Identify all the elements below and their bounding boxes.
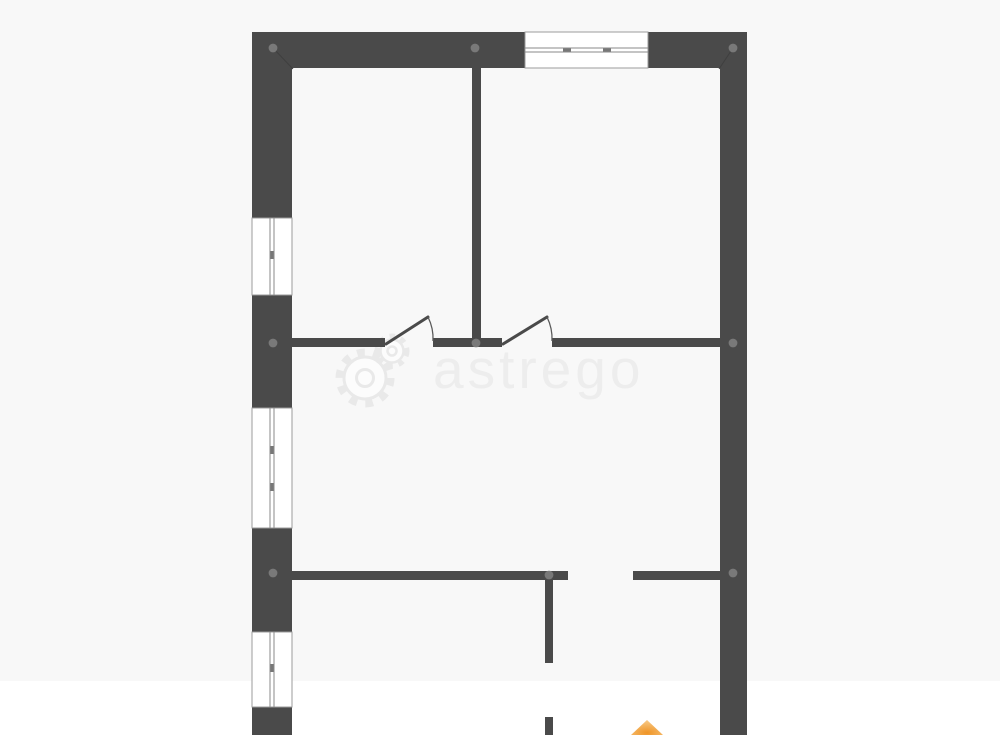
door bbox=[386, 317, 433, 344]
door-leaf bbox=[503, 317, 547, 344]
wall-segment bbox=[545, 571, 553, 663]
window bbox=[525, 32, 648, 68]
wall-segment bbox=[545, 717, 553, 735]
orange-marker bbox=[631, 720, 663, 735]
wall-segment bbox=[633, 571, 720, 580]
floor-plan-svg bbox=[0, 0, 1000, 735]
wall-segment bbox=[720, 32, 747, 735]
junction-node bbox=[269, 339, 278, 348]
junction-node bbox=[269, 44, 278, 53]
wall-segment bbox=[252, 32, 292, 218]
door-swing-arc bbox=[547, 317, 552, 341]
orange-marker bbox=[631, 720, 663, 735]
window-frame bbox=[252, 408, 292, 528]
door-leaf bbox=[386, 317, 428, 344]
wall-joint-lines bbox=[252, 343, 747, 573]
wall-segment bbox=[252, 295, 292, 408]
wall-segment bbox=[252, 707, 292, 735]
door-swing-arc bbox=[428, 317, 433, 341]
wall-segment bbox=[552, 338, 720, 347]
window bbox=[252, 632, 292, 707]
windows bbox=[252, 32, 648, 707]
floor-plan-image: astrego bbox=[0, 0, 1000, 735]
junction-nodes bbox=[269, 44, 738, 580]
door bbox=[503, 317, 552, 344]
window bbox=[252, 408, 292, 528]
junction-node bbox=[729, 339, 738, 348]
junction-node bbox=[269, 569, 278, 578]
wall-segment bbox=[252, 32, 525, 68]
junction-node bbox=[729, 44, 738, 53]
wall-segment bbox=[252, 528, 292, 632]
junction-node bbox=[545, 571, 554, 580]
junction-node bbox=[472, 339, 481, 348]
wall-segment bbox=[433, 338, 502, 347]
walls bbox=[252, 32, 747, 735]
junction-node bbox=[471, 44, 480, 53]
window-frame bbox=[525, 32, 648, 68]
window bbox=[252, 218, 292, 295]
wall-segment bbox=[292, 338, 385, 347]
wall-segment bbox=[472, 68, 481, 347]
junction-node bbox=[729, 569, 738, 578]
wall-segment bbox=[292, 571, 568, 580]
